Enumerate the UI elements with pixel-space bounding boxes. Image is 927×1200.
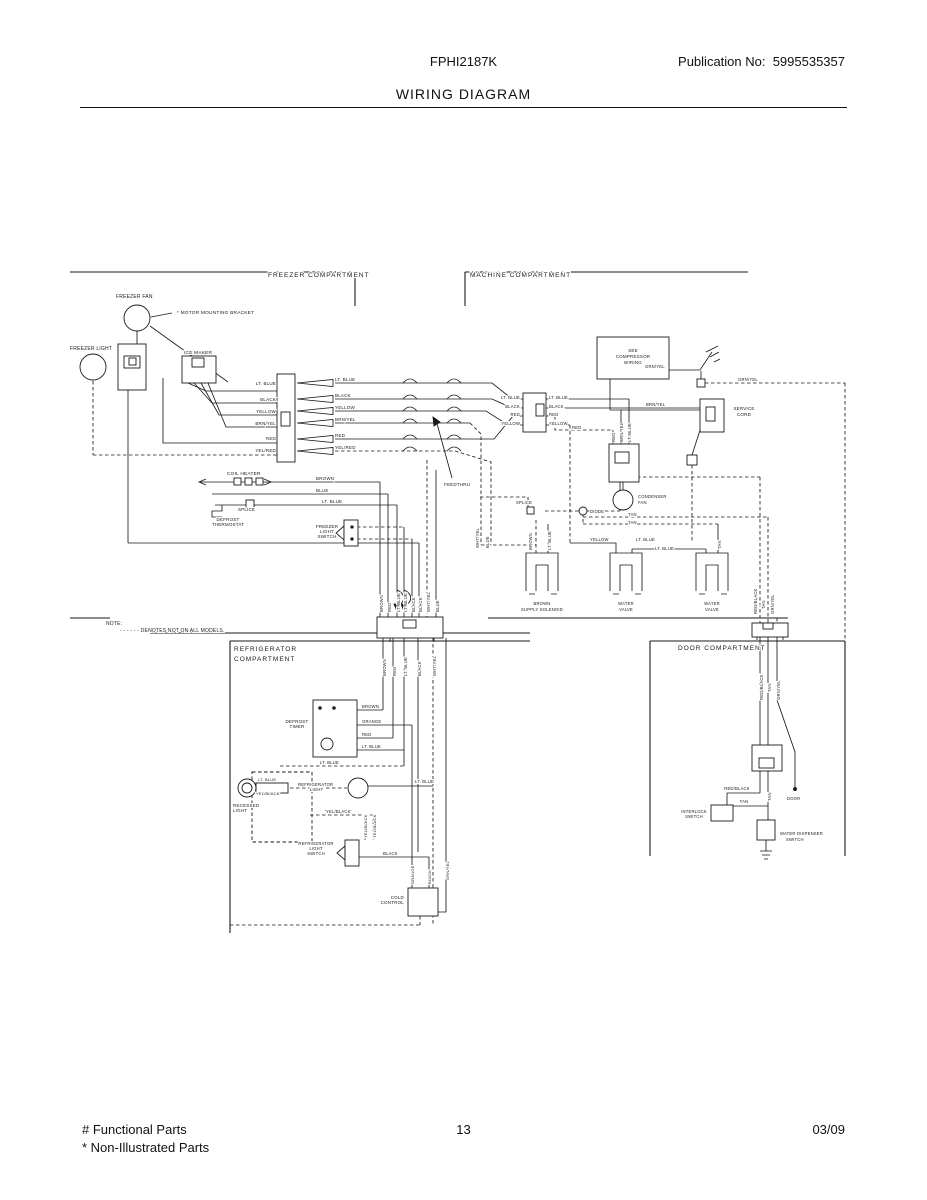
freezer-light: [80, 354, 106, 380]
service-cord-label: SERVICE: [733, 406, 754, 411]
splice-label: SPLICE: [238, 507, 255, 512]
wire-label: BLACK: [505, 404, 520, 409]
non-illustrated-parts-note: * Non-Illustrated Parts: [82, 1140, 209, 1155]
wire-label: SWITCH: [307, 851, 325, 856]
wire-label: SWITCH: [685, 814, 703, 819]
supply-solenoid-label: BROWN: [533, 601, 550, 606]
component-box: [403, 620, 416, 628]
wire-label: BRN/YEL: [619, 422, 624, 442]
wire-label: BROWN: [379, 595, 384, 612]
wire-label: LT. BLUE: [627, 423, 632, 442]
motor-mounting-bracket-label: * MOTOR MOUNTING BRACKET: [177, 310, 254, 316]
component-box: [763, 623, 773, 629]
freezer-light-switch: [344, 520, 358, 546]
compressor-wiring-label: SEE: [628, 348, 638, 353]
wire: [570, 543, 616, 553]
wire-label: VALVE: [705, 607, 719, 612]
wire: [335, 416, 523, 439]
symbol: [297, 448, 333, 455]
door-ground-point: [794, 788, 797, 791]
feedthru-grommet: [403, 379, 417, 451]
revision-date: 03/09: [812, 1122, 845, 1137]
note-text: - - - - - - DENOTES NOT ON ALL MODELS.: [120, 628, 225, 634]
wire-label: BROWN: [528, 533, 533, 550]
freezer-fan: [124, 305, 150, 331]
symbol: [757, 637, 783, 640]
component-symbol: [319, 707, 322, 710]
water-valve-label: WATER: [618, 601, 634, 606]
manual-page: FPHI2187K Publication No: 5995535357 WIR…: [0, 0, 927, 1200]
wire-label: TAN: [628, 512, 637, 517]
freezer-fan-label: FREEZER FAN: [116, 294, 153, 300]
ice-maker-label: ICE MAKER: [184, 350, 213, 356]
wire-label: LT. BLUE: [320, 760, 339, 765]
component-box: [256, 478, 263, 485]
symbol: [297, 396, 333, 403]
wire-label: RED: [387, 603, 392, 612]
wire-label: YELLOW: [590, 537, 609, 542]
wire-label: CORD: [737, 412, 752, 417]
splice: [527, 507, 534, 514]
wire-label: YEL/BLACK: [372, 814, 377, 838]
wire-label: BLACK: [418, 597, 423, 612]
wire-label: LT. BLUE: [322, 499, 342, 504]
wire-label: 'YEL/BLACK': [325, 809, 352, 814]
wire-label: BRN/YEL: [255, 421, 276, 426]
component-symbol: [351, 526, 353, 528]
wire-label: WIRING: [624, 360, 642, 365]
wire-label: LT. BLUE: [256, 381, 276, 386]
wire-label: YELLOW: [501, 421, 520, 426]
component-box: [536, 404, 544, 416]
wire-label: YELLOW: [256, 409, 277, 414]
water-dispenser-switch: [757, 820, 775, 840]
wire-label: THERMOSTAT: [212, 522, 244, 527]
defrost-thermostat-symbol: [212, 505, 222, 517]
wire-label: GRN/YEL: [738, 377, 758, 382]
wire-label: WHT/YEL: [475, 528, 480, 548]
wire-label: TAN: [761, 600, 766, 609]
wire-label: LT. BLUE: [501, 395, 520, 400]
symbol: [337, 846, 345, 860]
feedthru-grommet: [447, 379, 461, 451]
wire-label: VALVE: [619, 607, 633, 612]
wire-label: BLACK: [411, 597, 416, 612]
wire-label: GRN/YEL: [645, 364, 665, 369]
water-valve-coil: [696, 553, 728, 591]
wire-label: RED/BLACK: [753, 588, 758, 614]
wire: [151, 313, 172, 317]
component-box: [615, 452, 629, 463]
wire-label: YEL/RED: [335, 445, 356, 450]
wire-label: BLACK: [335, 393, 351, 398]
water-valve-label: WATER: [704, 601, 720, 606]
wire-label: BRN/YEL: [335, 417, 356, 422]
wire-label: RED: [392, 667, 397, 676]
coil-heater-label: COIL HEATER: [227, 471, 261, 477]
wire: [335, 399, 523, 408]
wire-label: BLACK: [260, 397, 276, 402]
symbol: [433, 417, 440, 426]
cold-control: [408, 888, 438, 916]
wire-label: RED: [511, 412, 520, 417]
symbol: [297, 380, 333, 387]
wire-label: WHT/YEL: [432, 656, 437, 676]
wire-label: LT. BLUE: [403, 657, 408, 676]
wire-label: LIGHT: [233, 808, 247, 813]
wire-label: LT. BLUE: [636, 537, 655, 542]
wire-label: RED: [572, 425, 581, 430]
door-compartment-label: DOOR COMPARTMENT: [678, 645, 766, 652]
wire: [470, 423, 481, 545]
interlock-switch: [711, 805, 733, 821]
component-box: [281, 412, 290, 426]
wire-label: YEL/RED: [255, 448, 276, 453]
wire-label: RED: [266, 436, 277, 441]
coil-heater: [234, 478, 241, 485]
wire-label: GRN/YEL: [770, 594, 775, 614]
wire-label: LIGHT: [310, 787, 324, 792]
wire-label: LT. BLUE: [415, 779, 434, 784]
wire-label: BLACK: [383, 851, 398, 856]
wire-label: RED/BLACK: [724, 786, 750, 791]
symbol: [297, 420, 333, 427]
wire: [455, 451, 491, 545]
ground-symbol: [706, 346, 720, 362]
diode-label: DIODE: [590, 509, 604, 514]
component-box: [697, 379, 705, 387]
note-label: NOTE:: [106, 621, 122, 627]
wire-label: RED/BLACK: [759, 674, 764, 700]
wire-label: CONTROL: [381, 900, 405, 905]
wire-label: GRN/YEL: [776, 680, 781, 700]
wire-label: BLUE: [485, 536, 490, 548]
machine-compartment-label: MACHINE COMPARTMENT: [470, 272, 571, 279]
page-number: 13: [0, 1122, 927, 1137]
wire-label: RED: [611, 433, 616, 442]
wire-label: ORANGE: [410, 865, 415, 884]
component-box: [687, 455, 697, 465]
wire-label: WHT/YEL: [426, 592, 431, 612]
wire-label: FAN: [638, 500, 647, 505]
freezer-compartment-label: FREEZER COMPARTMENT: [268, 272, 369, 279]
wire-label: BLACK: [549, 404, 564, 409]
wire-label: BROWN: [316, 476, 334, 481]
wire-label: COMPRESSOR: [616, 354, 651, 359]
wire-label: LT. BLUE: [396, 593, 401, 612]
wire-label: TAN: [767, 683, 772, 692]
diode: [579, 507, 587, 515]
condenser-fan: [613, 490, 633, 510]
wire-label: BLACK: [427, 870, 432, 884]
wire-label: LT. BLUE: [547, 531, 552, 550]
wiring-diagram: FREEZER COMPARTMENTMACHINE COMPARTMENTRE…: [0, 0, 927, 1200]
wire-label: RED: [549, 412, 558, 417]
component-box: [129, 358, 136, 365]
wire-label: SUPPLY SOLENOID: [521, 607, 563, 612]
wire-label: BLUE: [435, 600, 440, 612]
wire-label: BLUE: [316, 488, 329, 493]
water-dispenser-switch-label: WATER DISPENSER: [780, 831, 823, 836]
wire-label: BRN/YEL: [646, 402, 666, 407]
wire-label: BROWN: [362, 704, 379, 709]
condenser-fan-label: CONDENSER: [638, 494, 667, 499]
wire-label: COMPARTMENT: [234, 656, 295, 663]
wire: [335, 383, 523, 399]
wire-label: RED: [335, 433, 346, 438]
component-box: [192, 358, 204, 367]
wire-label: SWITCH: [786, 837, 804, 842]
defrost-timer-motor: [321, 738, 333, 750]
wire-label: GRN/YEL: [445, 860, 450, 880]
wire-label: LT. BLUE: [362, 744, 381, 749]
wire: [667, 352, 712, 370]
water-valve-coil: [610, 553, 642, 591]
wire-label: TAN: [740, 799, 749, 804]
freezer-light-label: FREEZER LIGHT: [70, 346, 112, 352]
component-symbol: [242, 783, 252, 793]
component-symbol: [351, 538, 353, 540]
wire-label: LT. BLUE: [258, 777, 276, 782]
wire-label: YEL/BLACK: [256, 791, 280, 796]
wire-label: RED: [362, 732, 371, 737]
wire-label: LT. BLUE: [655, 546, 674, 551]
component-box: [759, 758, 774, 768]
wire-label: SWITCH: [318, 534, 337, 539]
wire-label: TAN: [628, 520, 637, 525]
symbol: [297, 408, 333, 415]
door-label: DOOR: [787, 796, 800, 801]
wire-label: SPLICE: [516, 500, 532, 505]
component-symbol: [333, 707, 336, 710]
component-box: [245, 478, 252, 485]
wire-label: YELLOW: [549, 421, 568, 426]
wire-label: BLACK: [417, 661, 422, 676]
wire-label: TAN: [717, 540, 722, 549]
wire-label: LT. BLUE: [335, 377, 355, 382]
refrigerator-compartment-label: REFRIGERATOR: [234, 646, 297, 653]
refrigerator-light: [348, 778, 368, 798]
wire-label: LT. BLUE: [549, 395, 568, 400]
wire-label: BROWN: [382, 659, 387, 676]
wire-label: YELLOW: [335, 405, 356, 410]
wire-label: TIMER: [290, 724, 306, 729]
component-box: [706, 407, 715, 421]
wire-label: ORANGE: [362, 719, 381, 724]
ground-symbol: [760, 851, 772, 859]
symbol: [297, 436, 333, 443]
wire-label: TAN: [767, 792, 772, 801]
wire-label: YEL/BLACK: [363, 814, 368, 838]
supply-solenoid-coil: [526, 553, 558, 591]
feedthru-label: FEEDTHRU: [444, 482, 470, 487]
refrigerator-light-switch: [345, 840, 359, 866]
wire-label: LT. BLUE: [403, 593, 408, 612]
